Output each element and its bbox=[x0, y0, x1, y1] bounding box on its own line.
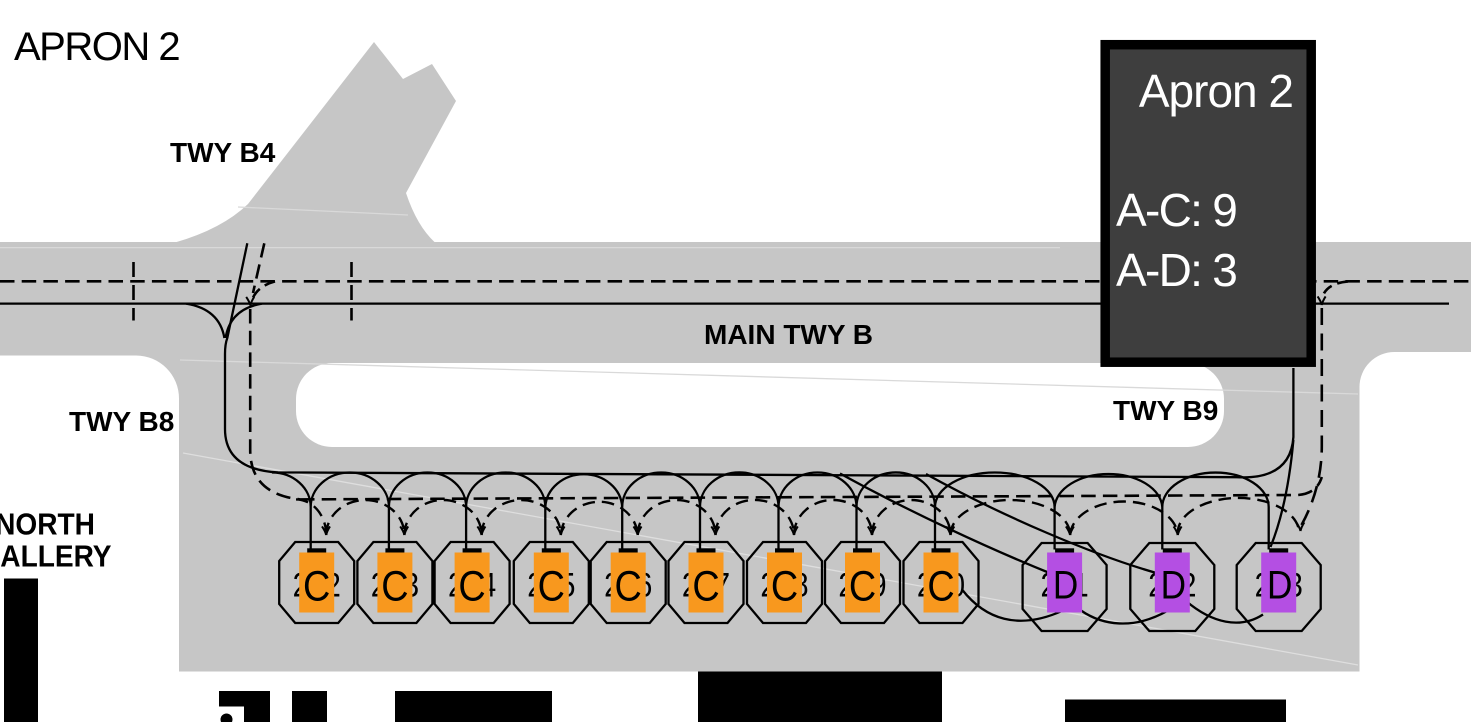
svg-text:D: D bbox=[1053, 562, 1078, 607]
svg-text:C: C bbox=[615, 561, 642, 610]
svg-text:A-C: 9: A-C: 9 bbox=[1116, 184, 1236, 236]
svg-text:NORTH: NORTH bbox=[0, 507, 95, 542]
svg-text:C: C bbox=[458, 561, 485, 610]
svg-text:TWY B4: TWY B4 bbox=[170, 137, 276, 168]
svg-text:C: C bbox=[381, 561, 408, 610]
svg-text:C: C bbox=[849, 561, 876, 610]
svg-text:D: D bbox=[1161, 562, 1186, 607]
svg-text:C: C bbox=[538, 561, 565, 610]
svg-text:TWY B9: TWY B9 bbox=[1113, 395, 1218, 426]
svg-text:C: C bbox=[692, 561, 719, 610]
svg-text:MAIN TWY B: MAIN TWY B bbox=[704, 319, 873, 350]
svg-text:A-D: 3: A-D: 3 bbox=[1116, 244, 1236, 296]
svg-text:C: C bbox=[927, 561, 954, 610]
svg-text:TWY B8: TWY B8 bbox=[69, 406, 174, 437]
svg-text:Apron 2: Apron 2 bbox=[1139, 65, 1293, 117]
svg-text:C: C bbox=[303, 561, 330, 610]
svg-text:GALLERY: GALLERY bbox=[0, 539, 112, 574]
svg-text:APRON 2: APRON 2 bbox=[14, 25, 179, 69]
svg-text:D: D bbox=[1267, 562, 1292, 607]
svg-text:C: C bbox=[771, 561, 798, 610]
